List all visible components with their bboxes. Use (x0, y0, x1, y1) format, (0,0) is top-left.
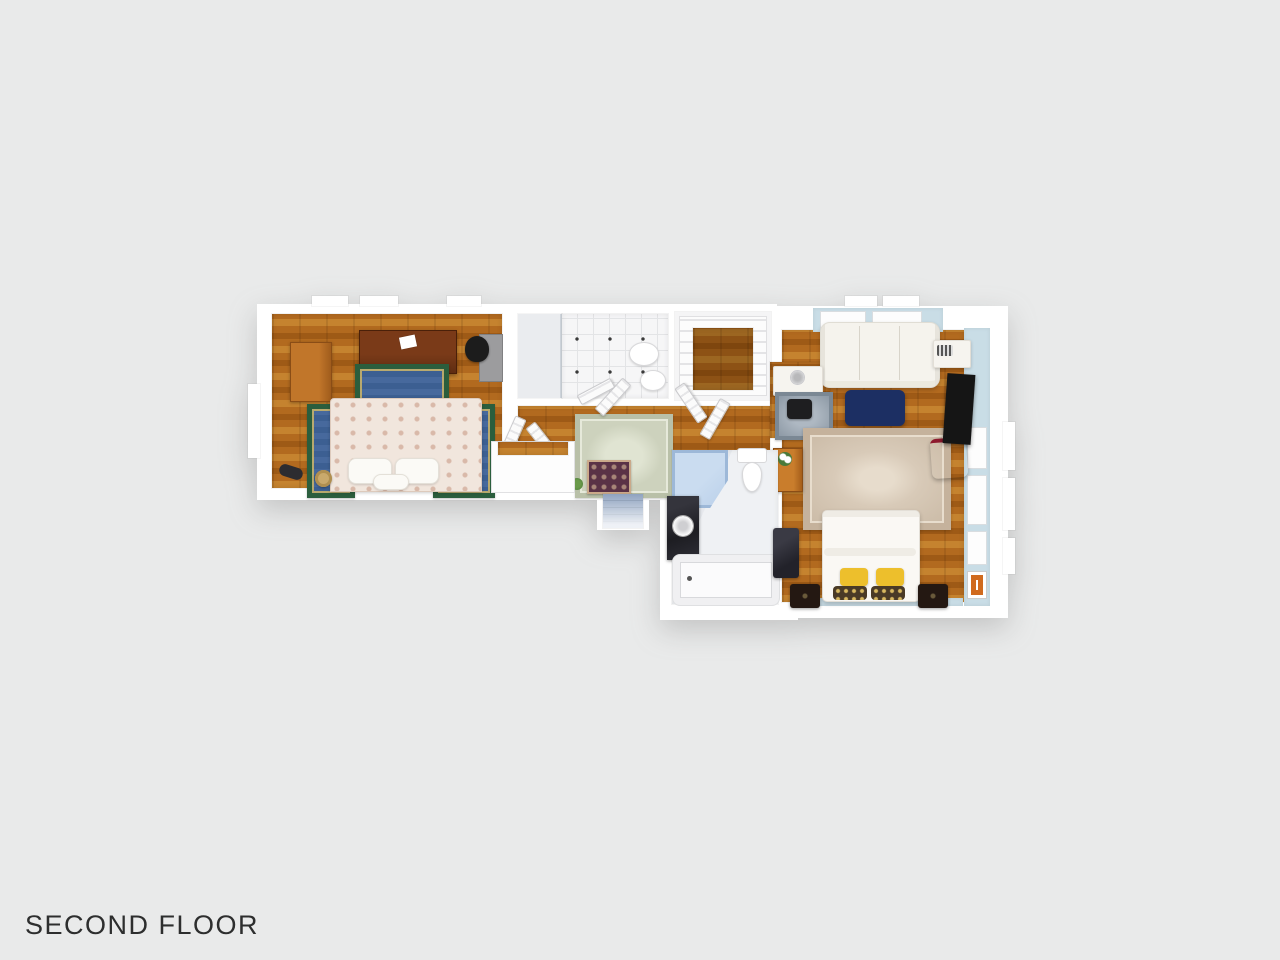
master-side-window (968, 532, 986, 564)
stair-runner-rug (587, 460, 631, 494)
desk-chair (465, 336, 489, 362)
wardrobe (290, 342, 332, 402)
floor-plan-render (255, 300, 1010, 625)
bathroom-shower-area (518, 314, 562, 398)
striped-box (937, 345, 953, 356)
staircase-down (603, 494, 643, 528)
wall-artwork (968, 572, 986, 598)
window-ledge (312, 296, 348, 306)
niche-floor-strip (498, 442, 568, 455)
vanity-stool (787, 399, 812, 419)
nightstand (918, 584, 948, 608)
bathtub-drain (687, 576, 692, 581)
window-ledge (1003, 422, 1015, 470)
ottoman-bench (845, 390, 905, 426)
bathroom-sink (640, 370, 666, 391)
vanity-sink-round (673, 516, 693, 536)
vanity-bowl (791, 371, 804, 384)
tv-screen (943, 373, 976, 445)
window-ledge (248, 384, 260, 458)
pillow-yellow (840, 568, 868, 586)
bed-pillow-small (373, 474, 409, 490)
sofa (820, 322, 940, 388)
sofa-cushion-line (859, 326, 860, 380)
window-ledge (1003, 538, 1015, 574)
closet-floor (693, 328, 753, 390)
basket (315, 470, 332, 487)
flower-vase (778, 452, 792, 466)
canvas: SECOND FLOOR (0, 0, 1280, 960)
window-ledge (360, 296, 398, 306)
window-ledge (1003, 478, 1015, 530)
toilet (629, 342, 659, 366)
pillow-patterned (833, 586, 867, 600)
bed-fold-line (824, 548, 916, 556)
sofa-cushion-line (899, 326, 900, 380)
window-ledge (883, 296, 919, 306)
window-ledge (845, 296, 877, 306)
master-side-window (968, 476, 986, 524)
window-ledge (447, 296, 481, 306)
pillow-yellow (876, 568, 904, 586)
pillow-patterned (871, 586, 905, 600)
floor-label: SECOND FLOOR (25, 910, 259, 941)
toilet-master-tank (737, 448, 767, 463)
marble-cabinet (773, 528, 799, 578)
nightstand (790, 584, 820, 608)
